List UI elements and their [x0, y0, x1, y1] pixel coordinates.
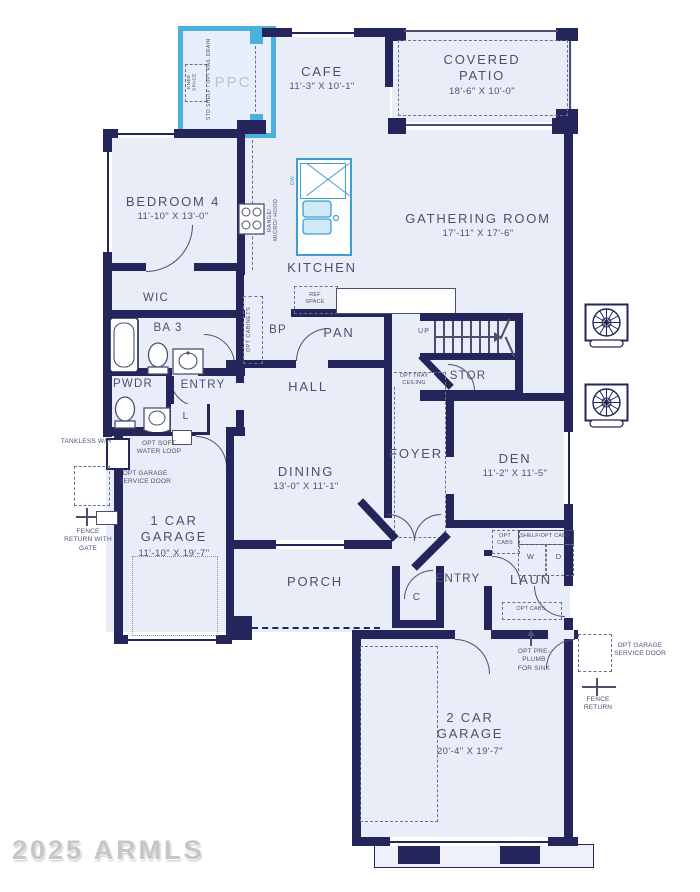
wall-den-left-upper [446, 401, 454, 457]
dryer-label: D [556, 552, 563, 561]
bedroom-left-window [103, 152, 112, 252]
fence-left-tick [86, 508, 88, 526]
ppc-label: PPC [215, 74, 252, 91]
kitchen-counter [336, 288, 456, 314]
patio-top-line [404, 30, 558, 32]
cafe-dims: 11'-3" X 10'-1" [289, 81, 354, 92]
kitchen-label: KITCHEN [287, 260, 357, 275]
opt-service-door-right-label: OPT GARAGE SERVICE DOOR [611, 642, 669, 659]
opt-soft-water-label: OPT SOFT WATER LOOP [136, 440, 182, 457]
washer-label: W [527, 552, 535, 561]
garage1-door [128, 635, 216, 644]
dining-label: DINING [278, 464, 334, 479]
dining-dims: 13'-0" X 11'-1" [273, 481, 338, 492]
wic-label: WIC [143, 292, 169, 304]
opt-tray-ceiling-label: OPT TRAY CEILING [394, 373, 434, 386]
wall-cafe-corner [241, 120, 266, 134]
opt-service-door-left-label: OPT GARAGE SERVICE DOOR [116, 470, 174, 487]
range-icon [238, 203, 265, 235]
gathering-label: GATHERING ROOM [405, 211, 551, 226]
bedroom-top-window [118, 129, 174, 138]
opt-cabs-upper-label: OPT CABS [494, 533, 516, 546]
ref-space-label: REF SPACE [300, 292, 330, 305]
fence-left-gate [96, 511, 118, 525]
range-micro-hood-label: RANGE/ MICRO/ HOOD [267, 198, 283, 242]
wall-kitchen-bedroom [237, 120, 245, 275]
laun-door-gap [484, 556, 492, 586]
garage2-dims: 20'-4" X 19'-7" [437, 746, 503, 757]
fence-return-right-label: FENCE RETURN [576, 696, 620, 713]
cafe-top-window [292, 28, 354, 37]
bedroom4-dims: 11'-10" X 13'-0" [138, 211, 209, 222]
opt-service-door-right-box [578, 634, 612, 672]
dining-window [276, 540, 344, 549]
wall-coat-left [392, 566, 400, 628]
laun-label: LAUN [510, 572, 552, 587]
preplumb-arrowhead [527, 630, 535, 636]
toilet-ba3-icon [145, 342, 171, 376]
fence-right-line [582, 686, 616, 688]
entry-lower-label: ENTRY [436, 573, 481, 585]
patio-right-line [569, 41, 571, 109]
garage1-label: 1 CAR GARAGE [132, 513, 216, 544]
patio-dims: 18'-6" X 10'-0" [449, 86, 515, 97]
tub-icon [109, 317, 139, 373]
sink-pwdr-icon [142, 406, 172, 432]
ac-unit-icon [584, 383, 631, 428]
garage2-service-door-gap [548, 630, 574, 639]
toilet-pwdr-icon [112, 396, 138, 430]
stor-label: STOR [450, 370, 487, 382]
porch-label: PORCH [287, 574, 343, 589]
tankless-wh-label: TANKLESS W/H [57, 438, 115, 446]
floor-plan: KNEE SPACE STD SHELF / OPT RAIL DRAIN PP… [0, 0, 700, 892]
garage2-entry-door-gap [455, 630, 491, 639]
pan-door-gap [296, 360, 328, 368]
wall-garage1-right [226, 430, 234, 634]
porch-edge-dashed [252, 627, 380, 629]
opt-preplumb-label: OPT PRE-PLUMB FOR SINK [517, 648, 551, 673]
bp-label: BP [269, 324, 287, 336]
up-label: UP [418, 328, 430, 335]
wall-foyer-left [384, 368, 392, 518]
wall-stor-right [515, 313, 523, 398]
opt-cabs-lower-label: OPT CABS [503, 606, 559, 613]
patio-slider-line [406, 124, 552, 126]
wall-stairs-bottom [420, 353, 523, 360]
pwdr-label: PWDR [113, 378, 153, 390]
garage1-dims: 11'-10" X 19'-7" [139, 548, 210, 559]
wall-right-upper [564, 122, 573, 432]
patio-door-post-l [388, 118, 406, 134]
wall-entry-right-stub [236, 410, 244, 436]
opt-cabinets-label: OPT CABINETS [246, 300, 258, 358]
stair-up-arrow-line [436, 336, 494, 338]
shelf-opt-cabs-label: SHELF/OPT CABS [518, 533, 572, 540]
opt-service-door-left-box [74, 466, 110, 506]
wall-coat-bottom [392, 620, 444, 628]
ba3-label: BA 3 [153, 322, 182, 334]
sink-ba3-icon [172, 348, 204, 375]
knee-space-label: KNEE SPACE [187, 66, 203, 98]
ac-unit-icon [584, 303, 631, 348]
armls-watermark: 2025 ARMLS [12, 835, 205, 866]
cafe-label: CAFE [301, 64, 343, 79]
dw-label: DW [291, 168, 299, 192]
entry-upper-label: ENTRY [181, 379, 226, 391]
island-sink-icon [302, 200, 342, 236]
fence-right-tick [596, 678, 598, 696]
den-dims: 11'-2" X 11'-5" [483, 468, 548, 479]
coat-label: C [413, 592, 421, 603]
den-label: DEN [499, 451, 532, 466]
ppc-cafe-opening [255, 46, 256, 112]
fence-return-gate-label: FENCE RETURN WITH GATE [62, 528, 114, 553]
garage1-parking-dashed [132, 556, 218, 636]
gathering-dims: 17'-11" X 17'-6" [443, 228, 514, 239]
wall-den-bottom [446, 520, 572, 528]
den-right-window [564, 432, 573, 504]
linen-label: L [183, 411, 190, 422]
pan-label: PAN [323, 325, 354, 340]
hall-label: HALL [288, 379, 328, 394]
wall-cafe-gathering-stub [385, 35, 393, 87]
patio-label: COVERED PATIO [434, 52, 530, 83]
porch-column [226, 616, 252, 640]
garage2-label: 2 CAR GARAGE [423, 710, 517, 741]
bedroom4-label: BEDROOM 4 [126, 194, 220, 209]
foyer-label: FOYER [389, 446, 443, 461]
garage2-door [390, 837, 548, 846]
